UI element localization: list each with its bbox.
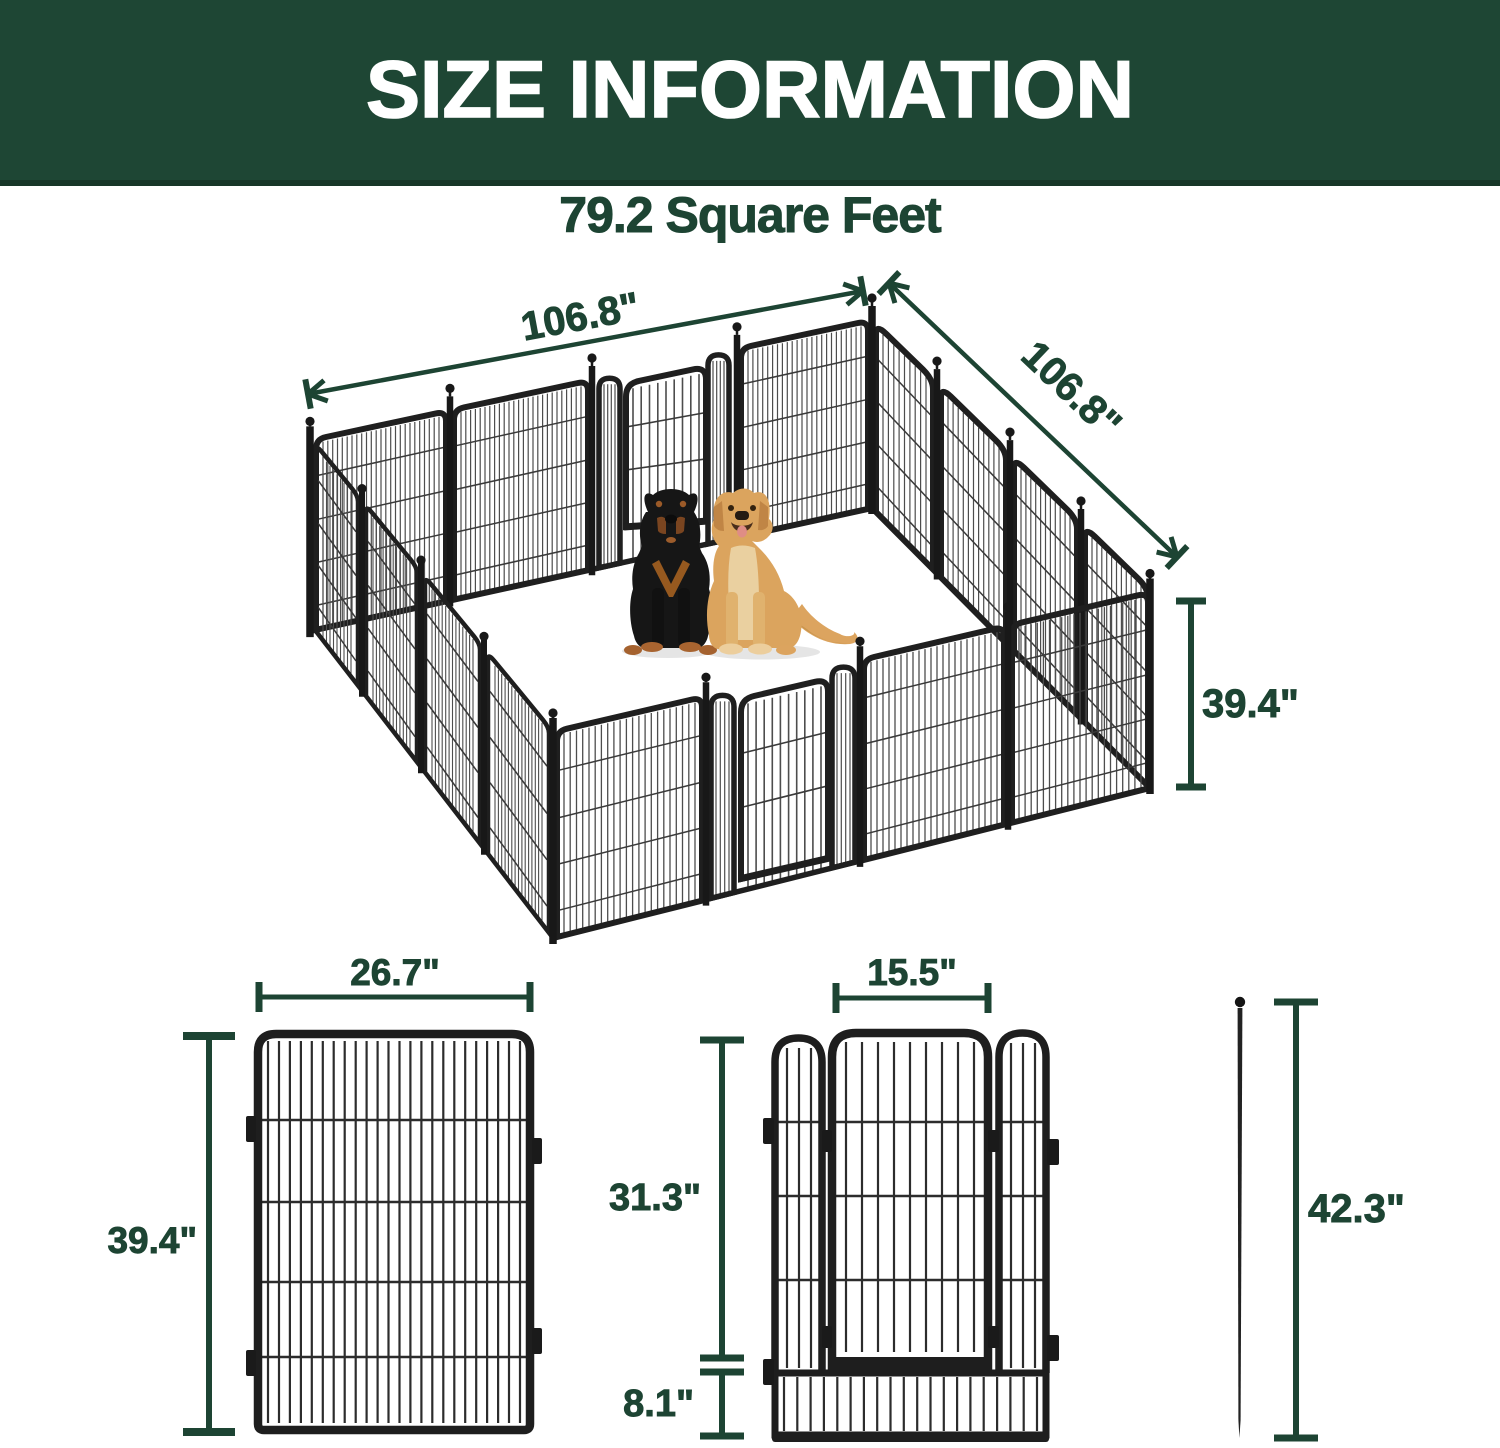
svg-text:8.1": 8.1" (623, 1383, 694, 1425)
svg-text:31.3": 31.3" (609, 1177, 701, 1219)
svg-text:39.4": 39.4" (107, 1220, 197, 1261)
svg-text:106.8": 106.8" (1013, 333, 1130, 447)
svg-text:26.7": 26.7" (350, 952, 440, 993)
svg-text:39.4": 39.4" (1202, 682, 1299, 726)
svg-text:15.5": 15.5" (867, 952, 957, 993)
svg-text:42.3": 42.3" (1308, 1187, 1405, 1231)
svg-text:106.8": 106.8" (518, 285, 643, 350)
